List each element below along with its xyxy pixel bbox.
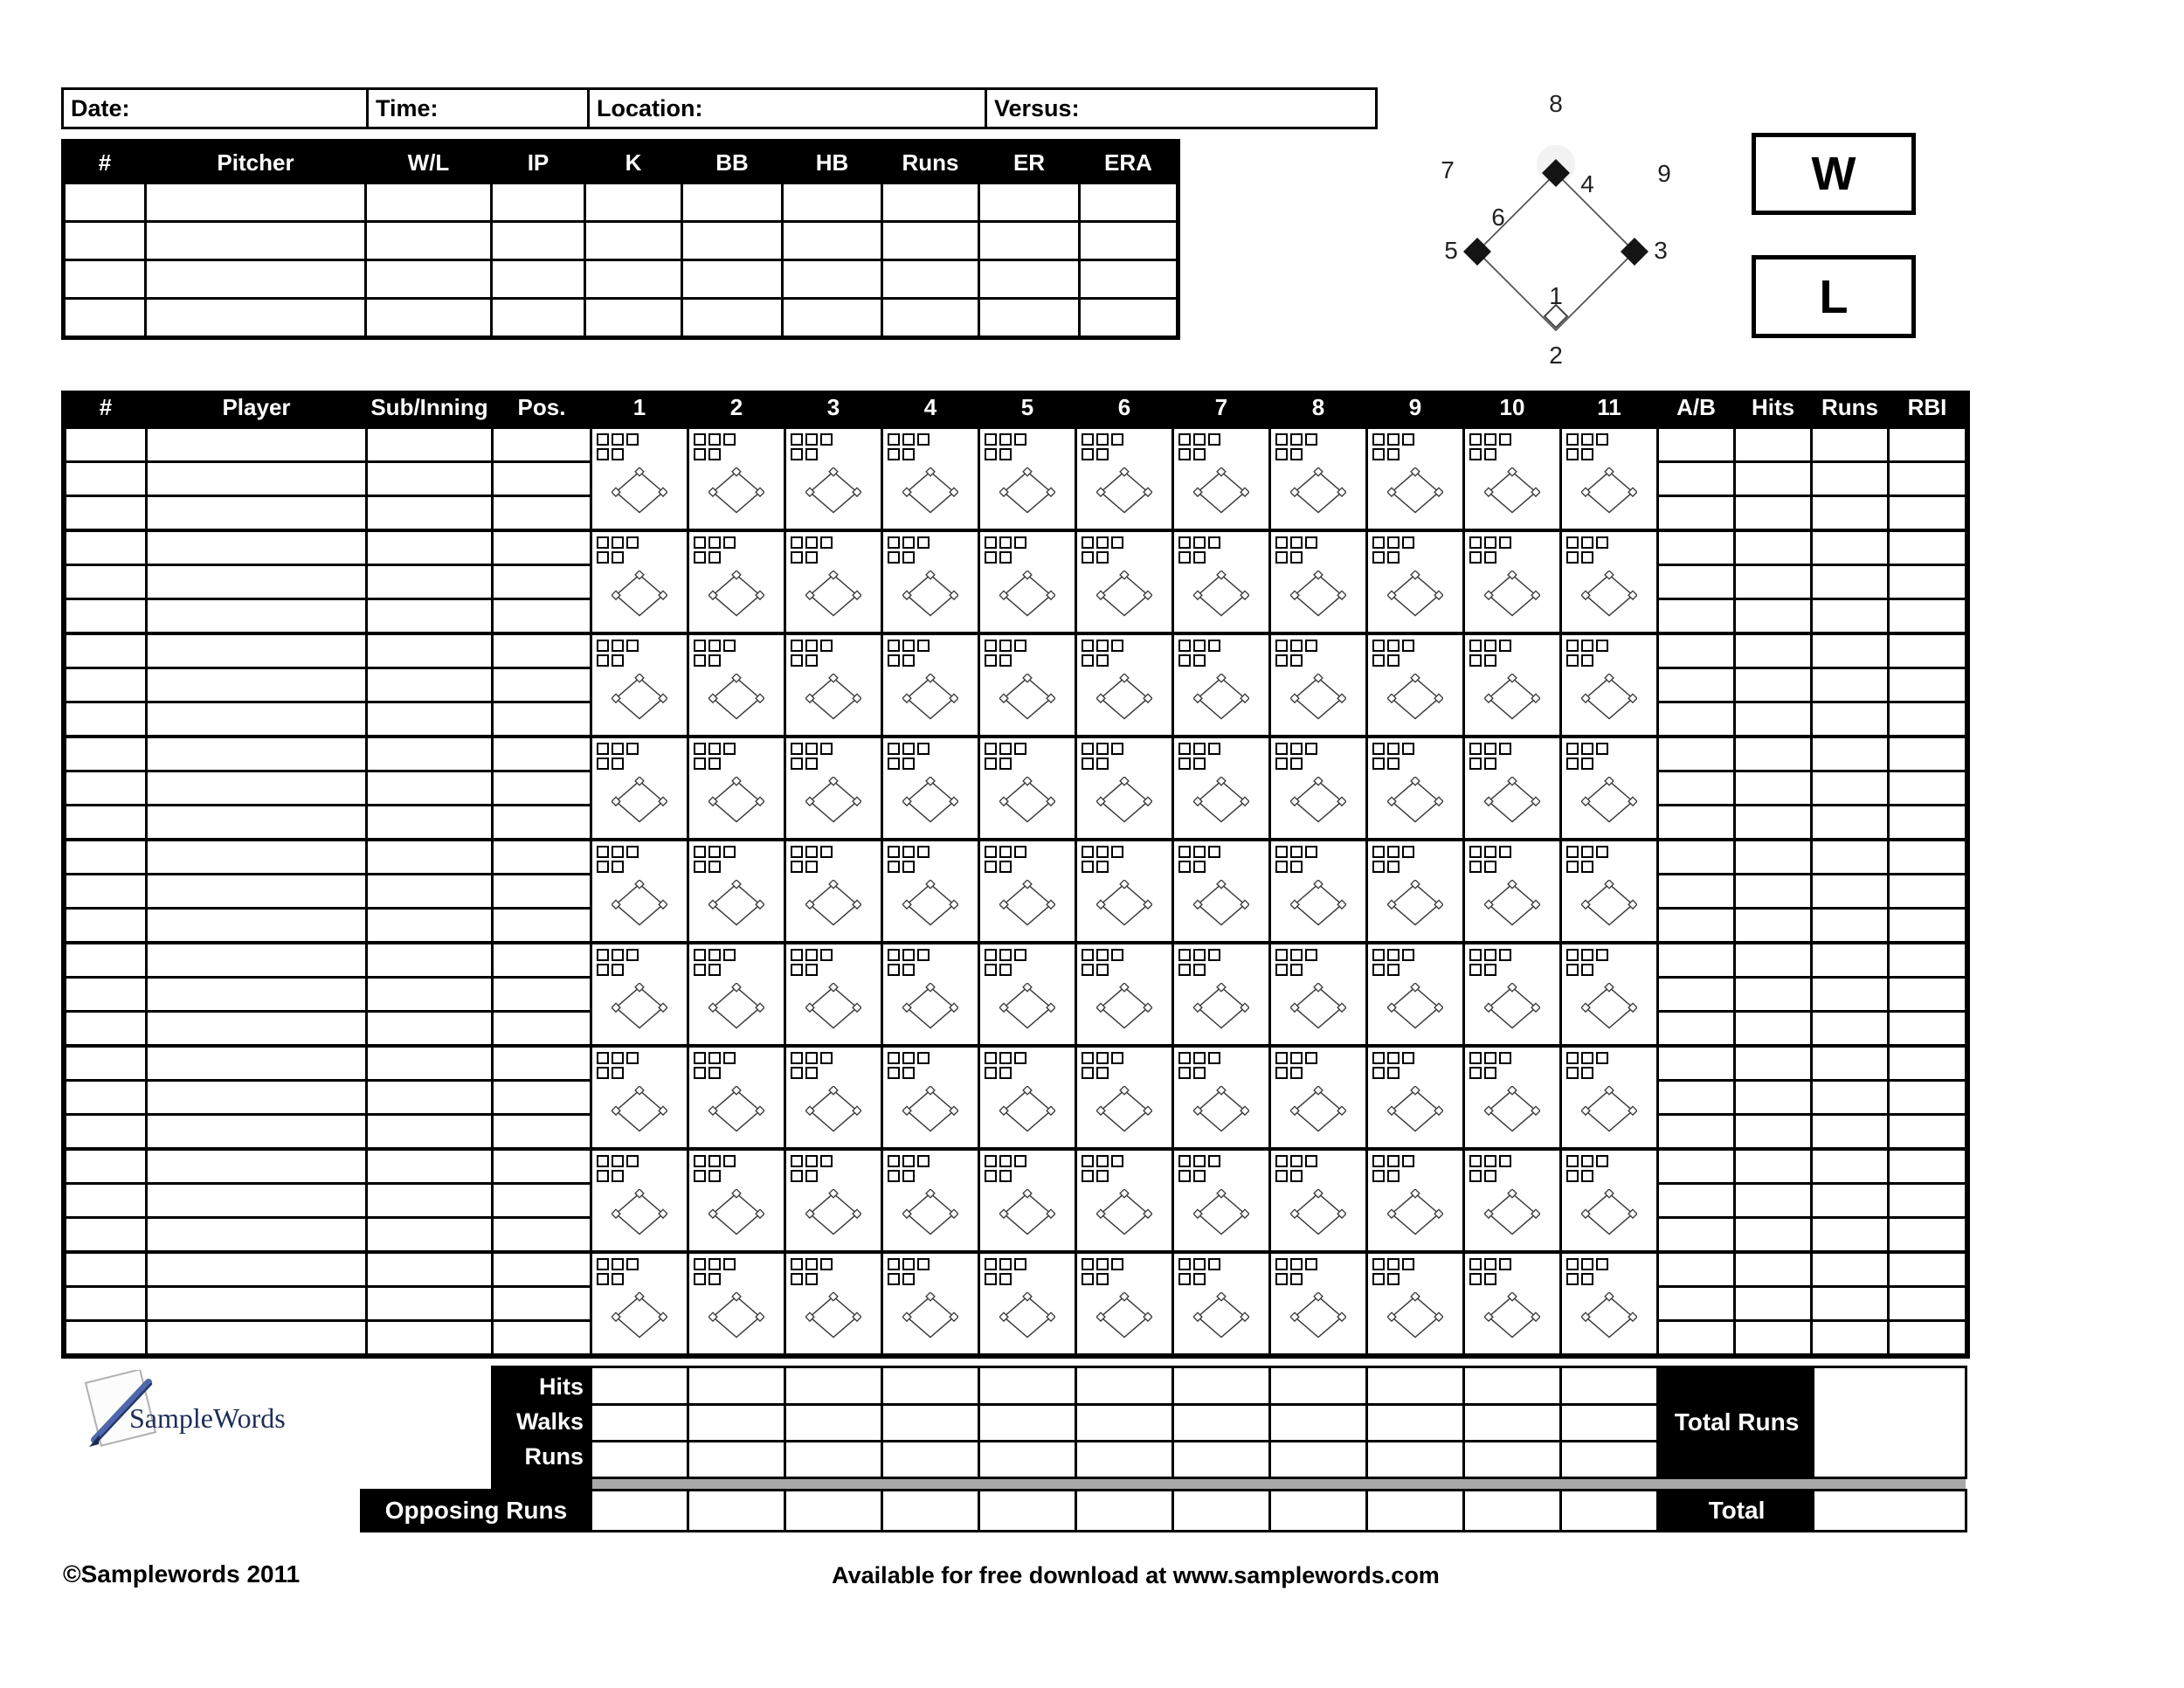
scoring-diamond-icon [1096, 1292, 1152, 1339]
summary-inning-cell [980, 1406, 1075, 1440]
pitch-count-row [1372, 1170, 1400, 1182]
win-box: W [1752, 133, 1916, 215]
pitch-count-row [1275, 743, 1317, 755]
pitch-count-row [694, 1170, 721, 1182]
pitch-count-box [791, 1273, 803, 1285]
pitch-count-box [708, 1170, 721, 1182]
pitch-count-row [1082, 758, 1109, 770]
summary-inning-cell [1077, 1368, 1171, 1403]
pitch-count-row [791, 536, 833, 549]
player-name-cell [148, 841, 365, 873]
pitch-count-box [1290, 551, 1303, 564]
pitch-count-box [820, 536, 833, 549]
pitch-count-box [902, 654, 915, 667]
pitcher-cell [980, 184, 1078, 220]
pitch-count-box [999, 1170, 1012, 1182]
pitch-count-box [1275, 1052, 1288, 1064]
inning-scoring-cell [1077, 944, 1171, 1044]
hits-cell [1736, 600, 1810, 632]
hits-cell [1736, 979, 1810, 1010]
inning-scoring-cell [1562, 532, 1656, 632]
inning-scoring-cell [689, 1254, 784, 1353]
scoring-col-header: RBI [1890, 391, 1965, 424]
inning-scoring-cell [980, 944, 1075, 1044]
scoring-diamond-icon [999, 777, 1055, 824]
runs-cell [1813, 600, 1887, 632]
pitch-count-box [791, 551, 803, 564]
inning-scoring-cell [592, 738, 687, 838]
at-bats-cell [1659, 1116, 1733, 1147]
pitch-count-row [1178, 846, 1220, 858]
pitch-count-row [597, 743, 639, 755]
player-name-cell [148, 532, 365, 564]
pitch-count-box [1275, 758, 1288, 770]
pitch-count-box [612, 1067, 624, 1079]
loss-box: L [1752, 255, 1916, 338]
pitch-count-box [597, 640, 609, 652]
pitch-count-box [626, 1155, 639, 1167]
pitch-count-box [626, 743, 639, 755]
rbi-cell [1890, 979, 1965, 1010]
rbi-cell [1890, 806, 1965, 838]
pitch-count-row [1566, 964, 1593, 976]
at-bats-cell [1659, 1013, 1733, 1044]
scoring-col-header: 3 [786, 391, 881, 424]
pitch-count-box [708, 1273, 721, 1285]
pitch-count-box [1581, 758, 1593, 770]
pitch-count-box [999, 640, 1012, 652]
pitch-count-row [985, 846, 1026, 858]
pitch-count-box [917, 536, 930, 549]
rbi-cell [1890, 497, 1965, 529]
pitch-count-row [1469, 1258, 1511, 1270]
player-number-cell [66, 944, 145, 976]
pitch-count-box [902, 448, 915, 460]
pitch-count-box [999, 949, 1012, 961]
pitch-count-row [1469, 433, 1511, 446]
inning-scoring-cell [1174, 532, 1268, 632]
pitch-count-row [1469, 758, 1496, 770]
pitch-count-box [791, 536, 803, 549]
inning-scoring-cell [1174, 841, 1268, 941]
versus-field: Versus: [987, 90, 1375, 127]
pitch-count-box [1290, 743, 1303, 755]
pos-8-label: 8 [1549, 90, 1563, 117]
scoring-diamond-icon [1193, 1292, 1249, 1339]
inning-scoring-cell [980, 635, 1075, 735]
pitch-count-box [1096, 1052, 1109, 1064]
pitch-count-box [1372, 433, 1385, 446]
pitch-count-box [1372, 1155, 1385, 1167]
pitch-count-box [1178, 1258, 1191, 1270]
pitch-count-row [1469, 861, 1496, 873]
pitch-count-box [1082, 551, 1094, 564]
summary-inning-cell [883, 1442, 978, 1477]
at-bats-cell [1659, 497, 1733, 529]
copyright-text: ©Samplewords 2011 [63, 1560, 300, 1588]
scoring-diamond-icon [612, 674, 667, 721]
position-cell [494, 979, 590, 1010]
pitch-count-box [1096, 964, 1109, 976]
pitch-count-box [723, 433, 736, 446]
pitch-count-box [1387, 964, 1400, 976]
pitch-count-box [820, 640, 833, 652]
scoring-diamond-icon [1484, 1292, 1540, 1339]
pitch-count-row [791, 949, 833, 961]
inning-scoring-cell [1077, 1254, 1171, 1353]
pitch-count-box [917, 1155, 930, 1167]
scoring-diamond-icon [1387, 467, 1443, 515]
scoring-diamond-icon [1484, 777, 1540, 824]
at-bats-cell [1659, 1151, 1733, 1182]
pitch-count-box [1484, 861, 1496, 873]
pitch-count-box [597, 551, 609, 564]
pitch-count-row [791, 551, 818, 564]
pitch-count-row [1082, 846, 1123, 858]
pitcher-cell [586, 223, 681, 259]
runs-cell [1813, 1013, 1887, 1044]
pitch-count-row [1178, 949, 1220, 961]
scoring-diamond-icon [612, 777, 667, 824]
position-cell [494, 669, 590, 701]
pitch-count-row [888, 846, 930, 858]
pitch-count-box [1096, 654, 1109, 667]
pitch-count-row [888, 640, 930, 652]
scoring-diamond-icon [708, 880, 764, 927]
inning-scoring-cell [592, 1254, 687, 1353]
pitcher-cell [883, 300, 978, 336]
pitch-count-row [1275, 964, 1303, 976]
inning-scoring-cell [689, 1048, 784, 1147]
inning-scoring-cell [1174, 1151, 1268, 1250]
pitch-count-row [1275, 1170, 1303, 1182]
pitch-count-box [1014, 433, 1026, 446]
pitch-count-box [985, 448, 997, 460]
pitch-count-row [1372, 949, 1414, 961]
pos-7-label: 7 [1441, 156, 1455, 183]
pitch-count-row [1178, 1273, 1206, 1285]
position-cell [494, 1219, 590, 1250]
pitch-count-box [723, 1052, 736, 1064]
pitch-count-box [694, 1258, 706, 1270]
inning-scoring-cell [592, 944, 687, 1044]
pitch-count-row [1178, 640, 1220, 652]
at-bats-cell [1659, 1322, 1733, 1353]
pitch-count-box [694, 743, 706, 755]
pitch-count-row [694, 743, 736, 755]
scoring-diamond-icon [1193, 1189, 1249, 1236]
opposing-runs-cell [689, 1491, 784, 1530]
pitch-count-box [1581, 964, 1593, 976]
pitch-count-box [1096, 1258, 1109, 1270]
pitch-count-box [1275, 743, 1288, 755]
pitch-count-box [1499, 433, 1511, 446]
pitch-count-box [1193, 1170, 1206, 1182]
pitch-count-box [612, 846, 624, 858]
pitch-count-box [999, 758, 1012, 770]
pitch-count-row [694, 536, 736, 549]
player-name-cell [148, 944, 365, 976]
player-name-cell [148, 1185, 365, 1216]
pitch-count-box [1290, 758, 1303, 770]
pitch-count-row [694, 654, 721, 667]
pitch-count-box [1469, 1052, 1482, 1064]
scoring-diamond-icon [999, 571, 1055, 618]
pitch-count-box [1275, 640, 1288, 652]
pitch-count-row [1372, 743, 1414, 755]
at-bats-cell [1659, 1082, 1733, 1113]
inning-scoring-cell [1368, 1151, 1462, 1250]
pitch-count-row [1178, 654, 1206, 667]
pitch-count-box [1402, 1258, 1414, 1270]
pitch-count-box [612, 640, 624, 652]
pitch-count-row [888, 949, 930, 961]
inning-scoring-cell [689, 429, 784, 529]
pitch-count-box [1178, 1067, 1191, 1079]
summary-inning-cell [980, 1368, 1075, 1403]
pitch-count-box [1208, 846, 1220, 858]
total-runs-section: Total Runs [1659, 1366, 1967, 1479]
pitch-count-box [985, 1273, 997, 1285]
pitch-count-box [1096, 743, 1109, 755]
pitch-count-box [1469, 743, 1482, 755]
scoring-diamond-icon [1581, 1189, 1637, 1236]
pitch-count-row [1372, 1258, 1414, 1270]
pitch-count-box [1596, 433, 1608, 446]
hits-cell [1736, 1082, 1810, 1113]
summary-inning-cell [1562, 1368, 1656, 1403]
pitcher-cell [586, 261, 681, 297]
pitch-count-row [1566, 1273, 1593, 1285]
pitch-count-box [902, 1067, 915, 1079]
scoring-diamond-icon [1581, 467, 1637, 515]
pitch-count-box [612, 964, 624, 976]
pitch-count-row [1082, 640, 1123, 652]
pos-9-label: 9 [1657, 160, 1671, 187]
pitch-count-row [1178, 1052, 1220, 1064]
pitch-count-row [1372, 640, 1414, 652]
pitch-count-box [1372, 1258, 1385, 1270]
pitch-count-box [1372, 536, 1385, 549]
scoring-diamond-icon [805, 1086, 861, 1133]
position-cell [494, 1288, 590, 1319]
pitch-count-box [888, 861, 900, 873]
scoring-col-header: Player [148, 391, 365, 424]
player-name-cell [148, 1151, 365, 1182]
pitch-count-row [1082, 1052, 1123, 1064]
at-bats-cell [1659, 910, 1733, 941]
pitch-count-box [1178, 758, 1191, 770]
pitch-count-box [1484, 1155, 1496, 1167]
rbi-cell [1890, 1185, 1965, 1216]
summary-inning-cell [689, 1406, 784, 1440]
pitch-count-row [985, 758, 1012, 770]
pitch-count-box [1014, 846, 1026, 858]
pitch-count-box [597, 1067, 609, 1079]
pitch-count-box [1566, 640, 1579, 652]
pitch-count-row [1082, 1170, 1109, 1182]
pitch-count-row [1469, 1273, 1496, 1285]
pitch-count-box [1111, 1155, 1123, 1167]
pitch-count-row [985, 536, 1026, 549]
inning-scoring-cell [1271, 532, 1365, 632]
pitch-count-row [694, 1273, 721, 1285]
pos-2-label: 2 [1549, 342, 1563, 369]
pos-4-label: 4 [1580, 170, 1594, 197]
scoring-col-header: 2 [689, 391, 784, 424]
pitch-count-box [1484, 758, 1496, 770]
pitch-count-row [985, 743, 1026, 755]
pitch-count-box [597, 654, 609, 667]
pitch-count-box [805, 758, 818, 770]
hits-cell [1736, 463, 1810, 495]
summary-inning-cell [1368, 1406, 1462, 1440]
pitch-count-box [626, 536, 639, 549]
player-block [66, 1254, 1965, 1353]
pitch-count-box [1596, 949, 1608, 961]
pitch-count-box [820, 846, 833, 858]
scoring-diamond-icon [708, 1292, 764, 1339]
sub-inning-cell [368, 463, 491, 495]
pitch-count-box [1014, 640, 1026, 652]
pitcher-col-header: # [66, 143, 144, 182]
pitch-count-box [902, 536, 915, 549]
sub-inning-cell [368, 806, 491, 838]
pitch-count-box [1372, 1067, 1385, 1079]
runs-cell [1813, 944, 1887, 976]
runs-cell [1813, 1288, 1887, 1319]
pitch-count-row [1372, 846, 1414, 858]
runs-cell [1813, 1254, 1887, 1285]
pitch-count-box [1178, 964, 1191, 976]
pitch-count-box [1096, 949, 1109, 961]
pitch-count-box [805, 949, 818, 961]
at-bats-cell [1659, 841, 1733, 873]
pitch-count-box [597, 758, 609, 770]
pitch-count-row [1566, 640, 1608, 652]
pitch-count-box [820, 1258, 833, 1270]
pitch-count-row [1469, 743, 1511, 755]
pitch-count-row [888, 536, 930, 549]
inning-scoring-cell [883, 738, 978, 838]
rbi-cell [1890, 1219, 1965, 1250]
pitch-count-box [1290, 1170, 1303, 1182]
total-runs-cell [1814, 1368, 1965, 1477]
scoring-diamond-icon [999, 1086, 1055, 1133]
inning-scoring-cell [883, 635, 978, 735]
pitch-count-row [694, 551, 721, 564]
pitch-count-row [1469, 949, 1511, 961]
pitch-count-box [1566, 1067, 1579, 1079]
inning-scoring-cell [1174, 1254, 1268, 1353]
runs-cell [1813, 463, 1887, 495]
pitch-count-box [1387, 433, 1400, 446]
pitcher-cell [147, 223, 364, 259]
pitch-count-row [1082, 1258, 1123, 1270]
position-cell [494, 1185, 590, 1216]
pitch-count-box [1111, 640, 1123, 652]
position-cell [494, 703, 590, 735]
pitcher-cell [883, 261, 978, 297]
inning-scoring-cell [1271, 738, 1365, 838]
pitcher-col-header: W/L [367, 143, 490, 182]
pitch-count-box [1305, 536, 1317, 549]
scoring-diamond-icon [612, 983, 667, 1030]
scoring-diamond-icon [1096, 674, 1152, 721]
at-bats-cell [1659, 979, 1733, 1010]
pitch-count-row [1566, 949, 1608, 961]
player-number-cell [66, 1322, 145, 1353]
pitch-count-box [597, 846, 609, 858]
summary-inning-cell [1271, 1406, 1365, 1440]
pitch-count-box [1469, 949, 1482, 961]
pitcher-cell [980, 223, 1078, 259]
pitch-count-box [1484, 964, 1496, 976]
pitch-count-box [597, 1273, 609, 1285]
pitch-count-box [1178, 949, 1191, 961]
pitcher-cell [493, 223, 584, 259]
sub-inning-cell [368, 910, 491, 941]
pitch-count-box [612, 1258, 624, 1270]
pitch-count-box [1469, 1273, 1482, 1285]
pitch-count-row [1566, 654, 1593, 667]
pitch-count-row [1566, 1052, 1608, 1064]
pitch-count-box [1372, 1170, 1385, 1182]
inning-scoring-cell [592, 1151, 687, 1250]
pitch-count-box [1566, 758, 1579, 770]
pitch-count-box [1082, 743, 1094, 755]
inning-scoring-cell [1077, 841, 1171, 941]
summary-inning-cell [1562, 1406, 1656, 1440]
hits-cell [1736, 772, 1810, 804]
pitcher-col-header: HB [784, 143, 881, 182]
player-number-cell [66, 1048, 145, 1079]
pitch-count-box [612, 654, 624, 667]
pitch-count-row [1275, 1052, 1317, 1064]
pitch-count-box [791, 654, 803, 667]
scoring-diamond-icon [1387, 1189, 1443, 1236]
pitch-count-row [1082, 743, 1123, 755]
pitcher-cell [66, 184, 144, 220]
scoring-diamond-icon [902, 880, 958, 927]
scoring-diamond-icon [999, 674, 1055, 721]
summary-inning-cell [592, 1368, 687, 1403]
pitch-count-row [694, 861, 721, 873]
sub-inning-cell [368, 1116, 491, 1147]
inning-scoring-cell [1174, 429, 1268, 529]
pitch-count-box [1387, 1052, 1400, 1064]
pitcher-cell [493, 184, 584, 220]
pitch-count-row [888, 1258, 930, 1270]
pitch-count-box [1387, 654, 1400, 667]
rbi-cell [1890, 772, 1965, 804]
pitch-count-box [1096, 448, 1109, 460]
pitcher-cell [147, 300, 364, 336]
pitch-count-box [694, 1052, 706, 1064]
pitch-count-box [708, 964, 721, 976]
pitch-count-box [1178, 1155, 1191, 1167]
inning-scoring-cell [1271, 1254, 1365, 1353]
rbi-cell [1890, 1322, 1965, 1353]
pitch-count-box [1082, 1155, 1094, 1167]
player-name-cell [148, 806, 365, 838]
inning-scoring-cell [1465, 635, 1559, 735]
pitch-count-box [612, 1052, 624, 1064]
scoring-diamond-icon [1581, 1292, 1637, 1339]
player-number-cell [66, 772, 145, 804]
player-number-cell [66, 669, 145, 701]
pitch-count-box [1305, 1052, 1317, 1064]
